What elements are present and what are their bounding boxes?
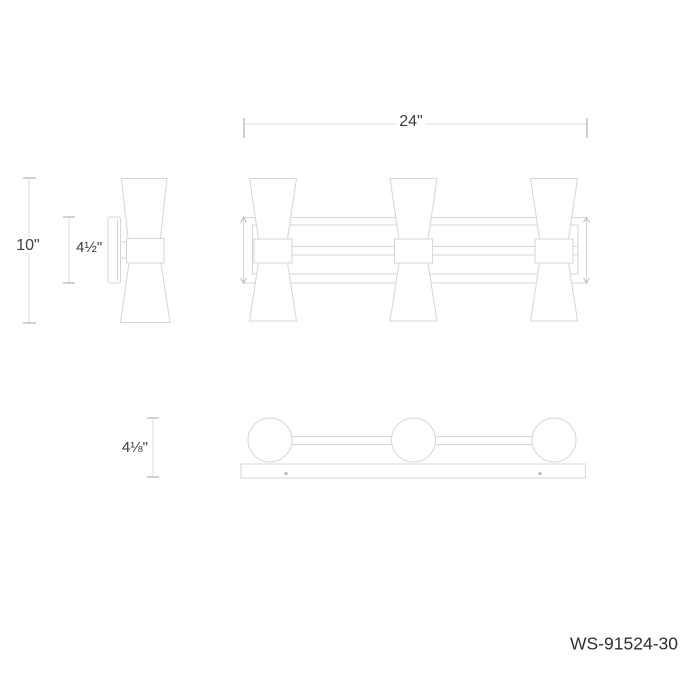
front-lamp-3-lower-shade [531, 263, 578, 321]
side-view [108, 179, 170, 323]
height-dimension-label: 10" [13, 237, 42, 255]
line-drawing [0, 0, 700, 700]
screw-dot-2 [538, 472, 542, 476]
front-view [241, 179, 590, 322]
spec-sheet-drawing: 24" 10" 4½" 4⅛" WS-91524-30 [0, 0, 700, 700]
side-lower-shade [121, 263, 171, 323]
front-lamp-2-lower-shade [390, 263, 437, 321]
front-lamp-1-lower-shade [250, 263, 297, 321]
product-code: WS-91524-30 [570, 634, 678, 655]
screw-dot-1 [284, 472, 288, 476]
front-lamp-1-socket [254, 239, 292, 263]
front-lamp-2 [390, 179, 437, 322]
top-mounting-plate [241, 464, 586, 478]
front-lamp-3-socket [535, 239, 573, 263]
front-lamp-2-upper-shade [390, 179, 437, 240]
side-socket-body [127, 239, 165, 264]
top-globe-3 [532, 418, 576, 462]
top-globe-2 [392, 418, 436, 462]
side-upper-shade [122, 179, 168, 239]
top-view [241, 418, 586, 478]
depth-dimension-label: 4⅛" [119, 440, 151, 457]
front-lamp-3-upper-shade [531, 179, 578, 240]
front-lamp-3 [531, 179, 578, 322]
backplate-height-dimension-label: 4½" [73, 240, 105, 257]
front-lamp-1 [250, 179, 297, 322]
front-lamp-2-socket [395, 239, 433, 263]
width-dimension-label: 24" [396, 113, 425, 131]
top-globe-1 [248, 418, 292, 462]
side-backplate [108, 217, 121, 283]
front-lamp-1-upper-shade [250, 179, 297, 240]
